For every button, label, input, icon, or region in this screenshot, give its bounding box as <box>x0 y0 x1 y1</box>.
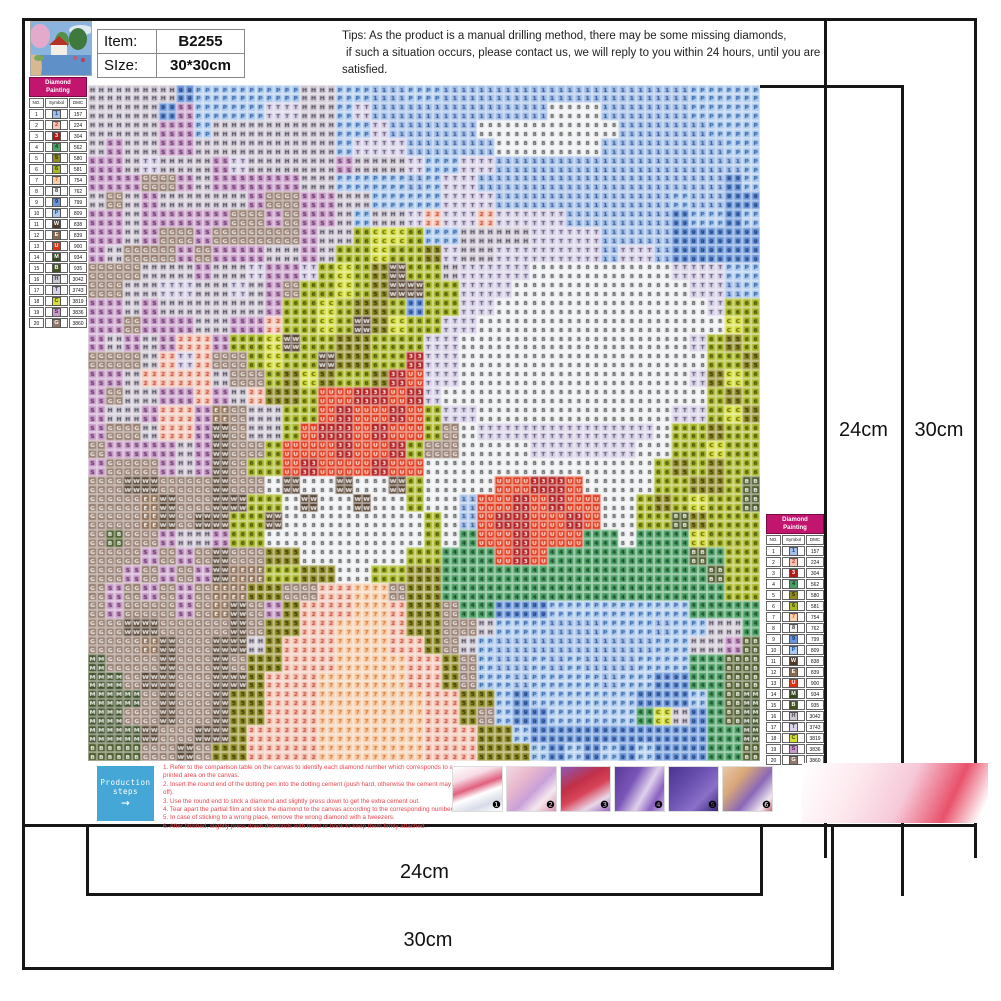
legend-symbol: E <box>45 230 68 240</box>
step-number-badge: ❷ <box>546 801 555 811</box>
legend-row: 16H3042 <box>29 274 87 284</box>
legend-row: 11157 <box>29 109 87 119</box>
legend-symbol: 2 <box>45 120 68 130</box>
size-label: SIze: <box>98 54 157 77</box>
legend-symbol: 8 <box>45 186 68 196</box>
legend-row: 13U900 <box>766 678 824 688</box>
legend-dmc: 3042 <box>806 711 824 721</box>
legend-dmc: 3743 <box>806 722 824 732</box>
legend-row: 12E839 <box>29 230 87 240</box>
dim-line-horiz-top24 <box>760 85 904 88</box>
tips-line1: Tips: As the product is a manual drillin… <box>342 28 862 45</box>
bracket30-bottom <box>22 967 834 970</box>
legend-symbol: 6 <box>45 164 68 174</box>
legend-no: 6 <box>766 601 781 611</box>
tips-line2: if such a situation occurs, please conta… <box>342 45 862 62</box>
step-photo: ❺ <box>668 766 719 812</box>
legend-no: 4 <box>29 142 44 152</box>
step-photo-partial <box>802 763 988 823</box>
step-photo: ❷ <box>506 766 557 812</box>
legend-dmc: 581 <box>69 164 87 174</box>
diamond-canvas-grid <box>88 85 760 761</box>
legend-symbol: 6 <box>782 601 805 611</box>
step-photo: ❶ <box>452 766 503 812</box>
step-number-badge: ❸ <box>600 801 609 811</box>
legend-symbol: 3 <box>45 131 68 141</box>
legend-no: 1 <box>766 546 781 556</box>
item-label: Item: <box>98 30 157 53</box>
legend-dmc: 3836 <box>806 744 824 754</box>
legend-symbol: 4 <box>45 142 68 152</box>
legend-dmc: 799 <box>69 197 87 207</box>
tips-text: Tips: As the product is a manual drillin… <box>342 28 862 79</box>
production-step-line: 3. Use the round end to stick a diamond … <box>163 798 463 806</box>
legend-row: 55580 <box>29 153 87 163</box>
legend-no: 10 <box>766 645 781 655</box>
legend-dmc: 762 <box>806 623 824 633</box>
legend-symbol: P <box>782 645 805 655</box>
legend-dmc: 900 <box>69 241 87 251</box>
legend-row: 99799 <box>766 634 824 644</box>
legend-symbol: T <box>45 285 68 295</box>
legend-symbol: P <box>45 208 68 218</box>
dim-label-bottom-24cm: 24cm <box>86 861 763 884</box>
legend-dmc: 581 <box>806 601 824 611</box>
legend-dmc: 3819 <box>69 296 87 306</box>
legend-row: 17T3743 <box>766 722 824 732</box>
legend-title: Diamond Painting <box>29 77 87 97</box>
legend-symbol: 1 <box>45 109 68 119</box>
production-steps-box: Production steps → <box>97 766 154 821</box>
legend-no: 14 <box>766 689 781 699</box>
legend-symbol: 3 <box>782 568 805 578</box>
legend-no: 8 <box>29 186 44 196</box>
legend-no: 4 <box>766 579 781 589</box>
legend-dmc: 3042 <box>69 274 87 284</box>
size-row: SIze: 30*30cm <box>98 54 244 77</box>
legend-dmc: 809 <box>69 208 87 218</box>
legend-symbol: 4 <box>782 579 805 589</box>
legend-no: 5 <box>29 153 44 163</box>
legend-dmc: 304 <box>69 131 87 141</box>
legend-table-left: Diamond Painting NO. Symbol DMC 11157222… <box>29 77 87 328</box>
legend-symbol: 5 <box>782 590 805 600</box>
legend-dmc: 809 <box>806 645 824 655</box>
dim-label-right-24cm: 24cm <box>826 419 901 442</box>
legend-symbol: T <box>782 722 805 732</box>
legend-row: 22224 <box>29 120 87 130</box>
legend-dmc: 762 <box>69 186 87 196</box>
legend-no: 3 <box>29 131 44 141</box>
product-thumbnail <box>30 21 92 76</box>
tips-line3: satisfied. <box>342 62 862 79</box>
production-step-line: 6. After finished, slightly press down d… <box>163 823 463 831</box>
legend-no: 10 <box>29 208 44 218</box>
legend-dmc: 580 <box>69 153 87 163</box>
legend-symbol: 8 <box>782 623 805 633</box>
legend-no: 3 <box>766 568 781 578</box>
legend-row: 15B935 <box>766 700 824 710</box>
legend-row: 20G3860 <box>29 318 87 328</box>
legend-symbol: U <box>45 241 68 251</box>
legend-symbol: G <box>45 318 68 328</box>
production-step-photos: ❶ ❷ ❸ ❹ ❺ ❻ <box>452 766 773 812</box>
legend-dmc: 838 <box>806 656 824 666</box>
bracket24-right <box>760 824 763 896</box>
frame-top-line <box>22 18 977 21</box>
legend-no: 9 <box>766 634 781 644</box>
step-number-badge: ❶ <box>492 801 501 811</box>
legend-dmc: 3836 <box>69 307 87 317</box>
legend-symbol: 9 <box>782 634 805 644</box>
item-row: Item: B2255 <box>98 30 244 54</box>
legend-dmc: 934 <box>806 689 824 699</box>
legend-row: 44562 <box>29 142 87 152</box>
bracket24-left <box>86 824 89 896</box>
legend-dmc: 839 <box>806 667 824 677</box>
dim-label-right-30cm: 30cm <box>903 419 975 442</box>
legend-dmc: 157 <box>806 546 824 556</box>
size-value: 30*30cm <box>157 54 244 77</box>
legend-dmc: 224 <box>806 557 824 567</box>
legend-row: 13U900 <box>29 241 87 251</box>
step-photo: ❹ <box>614 766 665 812</box>
legend-row: 19S3836 <box>29 307 87 317</box>
step-number-badge: ❻ <box>762 801 771 811</box>
legend-row: 33304 <box>766 568 824 578</box>
legend-row: 18C3819 <box>29 296 87 306</box>
legend-dmc: 562 <box>806 579 824 589</box>
production-step-line: 1. Refer to the comparison table on the … <box>163 764 463 781</box>
legend-dmc: 799 <box>806 634 824 644</box>
legend-row: 99799 <box>29 197 87 207</box>
legend-no: 19 <box>29 307 44 317</box>
step-photo: ❸ <box>560 766 611 812</box>
bracket24-bottom <box>86 893 763 896</box>
legend-symbol: B <box>782 700 805 710</box>
legend-dmc: 580 <box>806 590 824 600</box>
production-steps-text: 1. Refer to the comparison table on the … <box>163 764 463 831</box>
step-photo: ❻ <box>722 766 773 812</box>
legend-row: 11W838 <box>29 219 87 229</box>
legend-no: 2 <box>29 120 44 130</box>
legend-no: 13 <box>29 241 44 251</box>
item-value: B2255 <box>157 30 244 53</box>
legend-row: 11157 <box>766 546 824 556</box>
legend-symbol: 7 <box>782 612 805 622</box>
legend-no: 11 <box>766 656 781 666</box>
legend-dmc: 935 <box>69 263 87 273</box>
legend-symbol: M <box>782 689 805 699</box>
legend-dmc: 754 <box>806 612 824 622</box>
legend-symbol: H <box>45 274 68 284</box>
legend-symbol: C <box>45 296 68 306</box>
legend-dmc: 304 <box>806 568 824 578</box>
legend-symbol: S <box>782 744 805 754</box>
production-step-line: 5. In case of sticking to a wrong place,… <box>163 814 463 822</box>
legend-row: 17T3743 <box>29 285 87 295</box>
legend-col-headers: NO. Symbol DMC <box>29 98 87 108</box>
production-box-line1: Production <box>97 778 154 787</box>
legend-no: 1 <box>29 109 44 119</box>
legend-row: 66581 <box>29 164 87 174</box>
dim-label-bottom-30cm: 30cm <box>22 929 834 952</box>
legend-no: 16 <box>766 711 781 721</box>
legend-no: 19 <box>766 744 781 754</box>
legend-title: Diamond Painting <box>766 514 824 534</box>
legend-dmc: 3860 <box>69 318 87 328</box>
production-step-line: 4. Tear apart the partial film and stick… <box>163 806 463 814</box>
legend-symbol: 7 <box>45 175 68 185</box>
legend-row: 16H3042 <box>766 711 824 721</box>
legend-row: 77754 <box>29 175 87 185</box>
legend-row: 14M934 <box>766 689 824 699</box>
legend-row: 55580 <box>766 590 824 600</box>
legend-symbol: 1 <box>782 546 805 556</box>
legend-no: 18 <box>29 296 44 306</box>
legend-table-right: Diamond Painting NO. Symbol DMC 11157222… <box>766 514 824 765</box>
legend-dmc: 935 <box>806 700 824 710</box>
legend-symbol: E <box>782 667 805 677</box>
legend-no: 9 <box>29 197 44 207</box>
legend-row: 14M934 <box>29 252 87 262</box>
legend-row: 10P809 <box>29 208 87 218</box>
legend-no: 11 <box>29 219 44 229</box>
arrow-icon: → <box>97 798 154 808</box>
legend-no: 8 <box>766 623 781 633</box>
legend-dmc: 754 <box>69 175 87 185</box>
item-size-table: Item: B2255 SIze: 30*30cm <box>97 29 245 78</box>
legend-symbol: B <box>45 263 68 273</box>
legend-symbol: W <box>782 656 805 666</box>
legend-symbol: H <box>782 711 805 721</box>
legend-row: 18C3819 <box>766 733 824 743</box>
legend-row: 88762 <box>766 623 824 633</box>
legend-dmc: 3743 <box>69 285 87 295</box>
legend-row: 88762 <box>29 186 87 196</box>
legend-dmc: 562 <box>69 142 87 152</box>
legend-dmc: 900 <box>806 678 824 688</box>
legend-symbol: U <box>782 678 805 688</box>
legend-row: 22224 <box>766 557 824 567</box>
step-number-badge: ❹ <box>654 801 663 811</box>
legend-dmc: 157 <box>69 109 87 119</box>
legend-no: 12 <box>29 230 44 240</box>
legend-no: 20 <box>29 318 44 328</box>
product-sheet: Item: B2255 SIze: 30*30cm Tips: As the p… <box>0 0 1001 1001</box>
legend-no: 12 <box>766 667 781 677</box>
legend-no: 18 <box>766 733 781 743</box>
legend-row: 15B935 <box>29 263 87 273</box>
legend-no: 7 <box>766 612 781 622</box>
legend-no: 7 <box>29 175 44 185</box>
legend-no: 16 <box>29 274 44 284</box>
legend-symbol: W <box>45 219 68 229</box>
legend-no: 14 <box>29 252 44 262</box>
legend-row: 77754 <box>766 612 824 622</box>
legend-dmc: 838 <box>69 219 87 229</box>
legend-no: 2 <box>766 557 781 567</box>
legend-row: 66581 <box>766 601 824 611</box>
legend-no: 17 <box>29 285 44 295</box>
legend-dmc: 934 <box>69 252 87 262</box>
legend-row: 11W838 <box>766 656 824 666</box>
legend-dmc: 224 <box>69 120 87 130</box>
legend-no: 15 <box>29 263 44 273</box>
production-step-line: 2. Insert the round end of the dotting p… <box>163 781 463 798</box>
legend-no: 13 <box>766 678 781 688</box>
legend-symbol: 5 <box>45 153 68 163</box>
legend-row: 10P809 <box>766 645 824 655</box>
step-number-badge: ❺ <box>708 801 717 811</box>
legend-row: 12E839 <box>766 667 824 677</box>
legend-no: 5 <box>766 590 781 600</box>
legend-row: 19S3836 <box>766 744 824 754</box>
legend-symbol: 9 <box>45 197 68 207</box>
legend-row: 33304 <box>29 131 87 141</box>
legend-col-headers: NO. Symbol DMC <box>766 535 824 545</box>
legend-symbol: 2 <box>782 557 805 567</box>
legend-dmc: 3819 <box>806 733 824 743</box>
legend-dmc: 839 <box>69 230 87 240</box>
legend-no: 20 <box>766 755 781 765</box>
frame-left-line <box>22 18 25 970</box>
legend-no: 15 <box>766 700 781 710</box>
legend-no: 17 <box>766 722 781 732</box>
legend-symbol: C <box>782 733 805 743</box>
legend-symbol: S <box>45 307 68 317</box>
legend-row: 44562 <box>766 579 824 589</box>
legend-symbol: M <box>45 252 68 262</box>
legend-no: 6 <box>29 164 44 174</box>
